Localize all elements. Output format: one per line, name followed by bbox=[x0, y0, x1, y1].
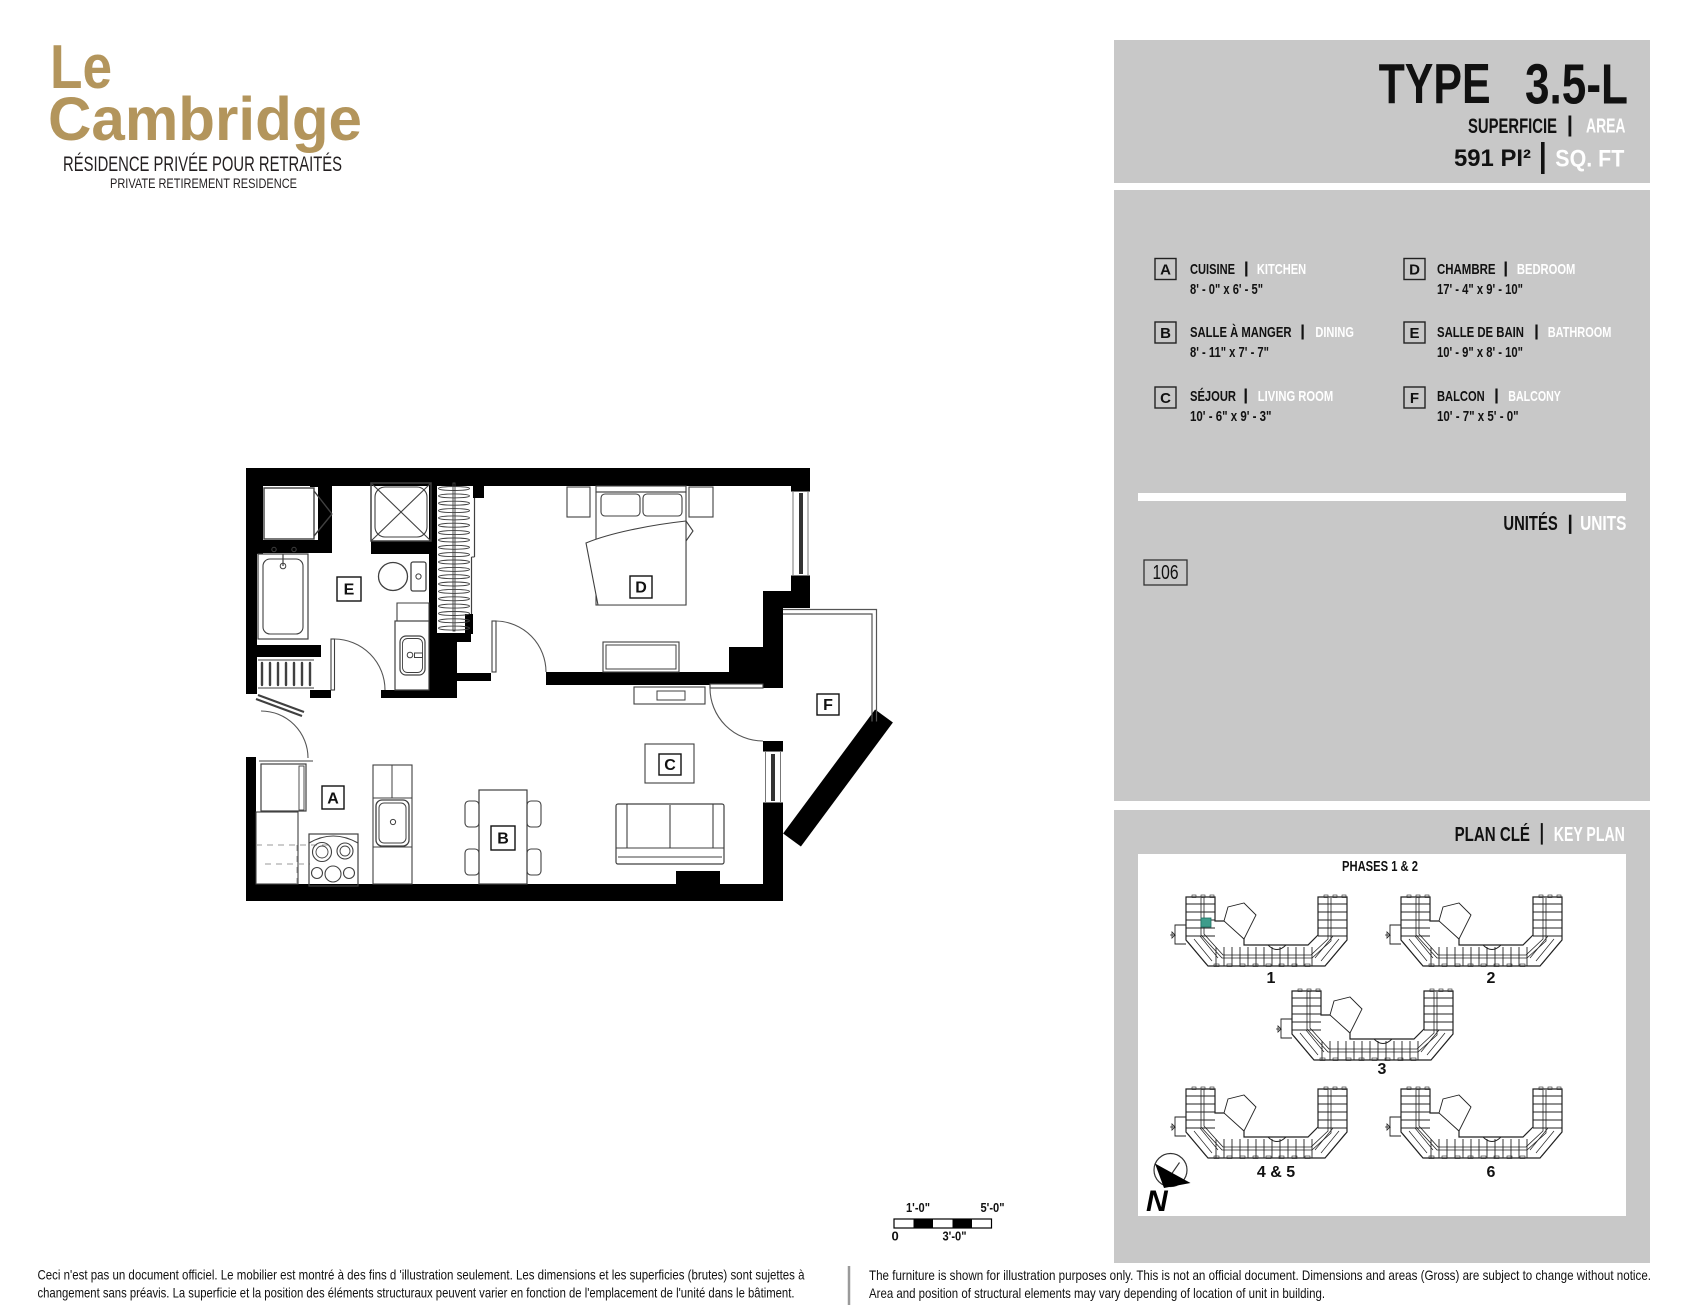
svg-text:8' - 0" x 6' - 5": 8' - 0" x 6' - 5" bbox=[1190, 281, 1263, 298]
svg-text:17' - 4" x 9' - 10": 17' - 4" x 9' - 10" bbox=[1437, 281, 1523, 298]
svg-text:106: 106 bbox=[1153, 562, 1179, 584]
svg-text:RÉSIDENCE PRIVÉE POUR RETRAITÉ: RÉSIDENCE PRIVÉE POUR RETRAITÉS bbox=[63, 153, 342, 176]
svg-text:UNITS: UNITS bbox=[1580, 513, 1626, 535]
svg-text:CUISINE: CUISINE bbox=[1190, 261, 1235, 278]
svg-text:1'-0": 1'-0" bbox=[906, 1200, 930, 1215]
svg-text:3: 3 bbox=[1378, 1061, 1387, 1078]
svg-text:D: D bbox=[1409, 262, 1420, 279]
svg-text:CHAMBRE: CHAMBRE bbox=[1437, 261, 1496, 278]
svg-text:10' - 6" x 9' - 3": 10' - 6" x 9' - 3" bbox=[1190, 408, 1272, 425]
svg-text:C: C bbox=[664, 757, 676, 774]
svg-text:0: 0 bbox=[892, 1229, 899, 1244]
svg-text:SALLE DE BAIN: SALLE DE BAIN bbox=[1437, 324, 1524, 341]
svg-text:TYPE: TYPE bbox=[1379, 52, 1491, 116]
svg-text:4 & 5: 4 & 5 bbox=[1257, 1164, 1295, 1181]
svg-text:AREA: AREA bbox=[1586, 116, 1626, 138]
svg-text:Ceci n'est pas un document off: Ceci n'est pas un document officiel. Le … bbox=[38, 1267, 805, 1283]
svg-text:E: E bbox=[344, 582, 355, 599]
svg-text:A: A bbox=[1160, 262, 1171, 279]
svg-text:F: F bbox=[1410, 390, 1419, 407]
svg-text:1: 1 bbox=[1267, 970, 1276, 987]
svg-text:KEY PLAN: KEY PLAN bbox=[1554, 824, 1625, 846]
svg-text:PHASES 1 & 2: PHASES 1 & 2 bbox=[1342, 858, 1418, 875]
svg-text:BALCON: BALCON bbox=[1437, 388, 1485, 405]
svg-text:N: N bbox=[1146, 1185, 1169, 1218]
svg-text:B: B bbox=[497, 831, 509, 848]
svg-text:10' - 7" x 5' - 0": 10' - 7" x 5' - 0" bbox=[1437, 408, 1519, 425]
svg-text:3'-0": 3'-0" bbox=[943, 1229, 967, 1244]
svg-text:KITCHEN: KITCHEN bbox=[1257, 261, 1306, 278]
svg-text:D: D bbox=[635, 580, 647, 597]
svg-text:SQ. FT: SQ. FT bbox=[1555, 146, 1624, 173]
svg-text:changement sans préavis. La su: changement sans préavis. La superficie e… bbox=[38, 1285, 795, 1301]
svg-text:2: 2 bbox=[1487, 970, 1496, 987]
svg-text:10' - 9" x 8' - 10": 10' - 9" x 8' - 10" bbox=[1437, 344, 1523, 361]
svg-text:SÉJOUR: SÉJOUR bbox=[1190, 388, 1236, 405]
svg-text:8' - 11" x 7' - 7": 8' - 11" x 7' - 7" bbox=[1190, 344, 1269, 361]
svg-text:A: A bbox=[327, 791, 339, 808]
svg-text:F: F bbox=[823, 697, 833, 714]
svg-text:DINING: DINING bbox=[1315, 324, 1354, 341]
svg-text:BALCONY: BALCONY bbox=[1508, 388, 1561, 405]
svg-text:SUPERFICIE: SUPERFICIE bbox=[1468, 115, 1557, 138]
svg-text:Cambridge: Cambridge bbox=[48, 85, 362, 153]
svg-text:LIVING ROOM: LIVING ROOM bbox=[1258, 388, 1333, 405]
svg-text:3.5-L: 3.5-L bbox=[1525, 53, 1628, 117]
svg-text:Area and position of structura: Area and position of structural elements… bbox=[869, 1285, 1325, 1301]
svg-text:PRIVATE RETIREMENT RESIDENCE: PRIVATE RETIREMENT RESIDENCE bbox=[110, 175, 297, 191]
svg-text:B: B bbox=[1160, 325, 1171, 342]
svg-text:5'-0": 5'-0" bbox=[981, 1200, 1005, 1215]
svg-text:591 PI²: 591 PI² bbox=[1454, 145, 1531, 172]
svg-text:BEDROOM: BEDROOM bbox=[1517, 261, 1576, 278]
svg-text:UNITÉS: UNITÉS bbox=[1503, 512, 1557, 535]
svg-text:The furniture is shown for ill: The furniture is shown for illustration … bbox=[869, 1267, 1651, 1283]
svg-text:C: C bbox=[1160, 390, 1171, 407]
svg-text:E: E bbox=[1409, 325, 1419, 342]
svg-text:BATHROOM: BATHROOM bbox=[1548, 324, 1612, 341]
svg-text:SALLE À MANGER: SALLE À MANGER bbox=[1190, 324, 1292, 341]
svg-text:PLAN CLÉ: PLAN CLÉ bbox=[1455, 823, 1530, 846]
svg-text:6: 6 bbox=[1487, 1164, 1496, 1181]
